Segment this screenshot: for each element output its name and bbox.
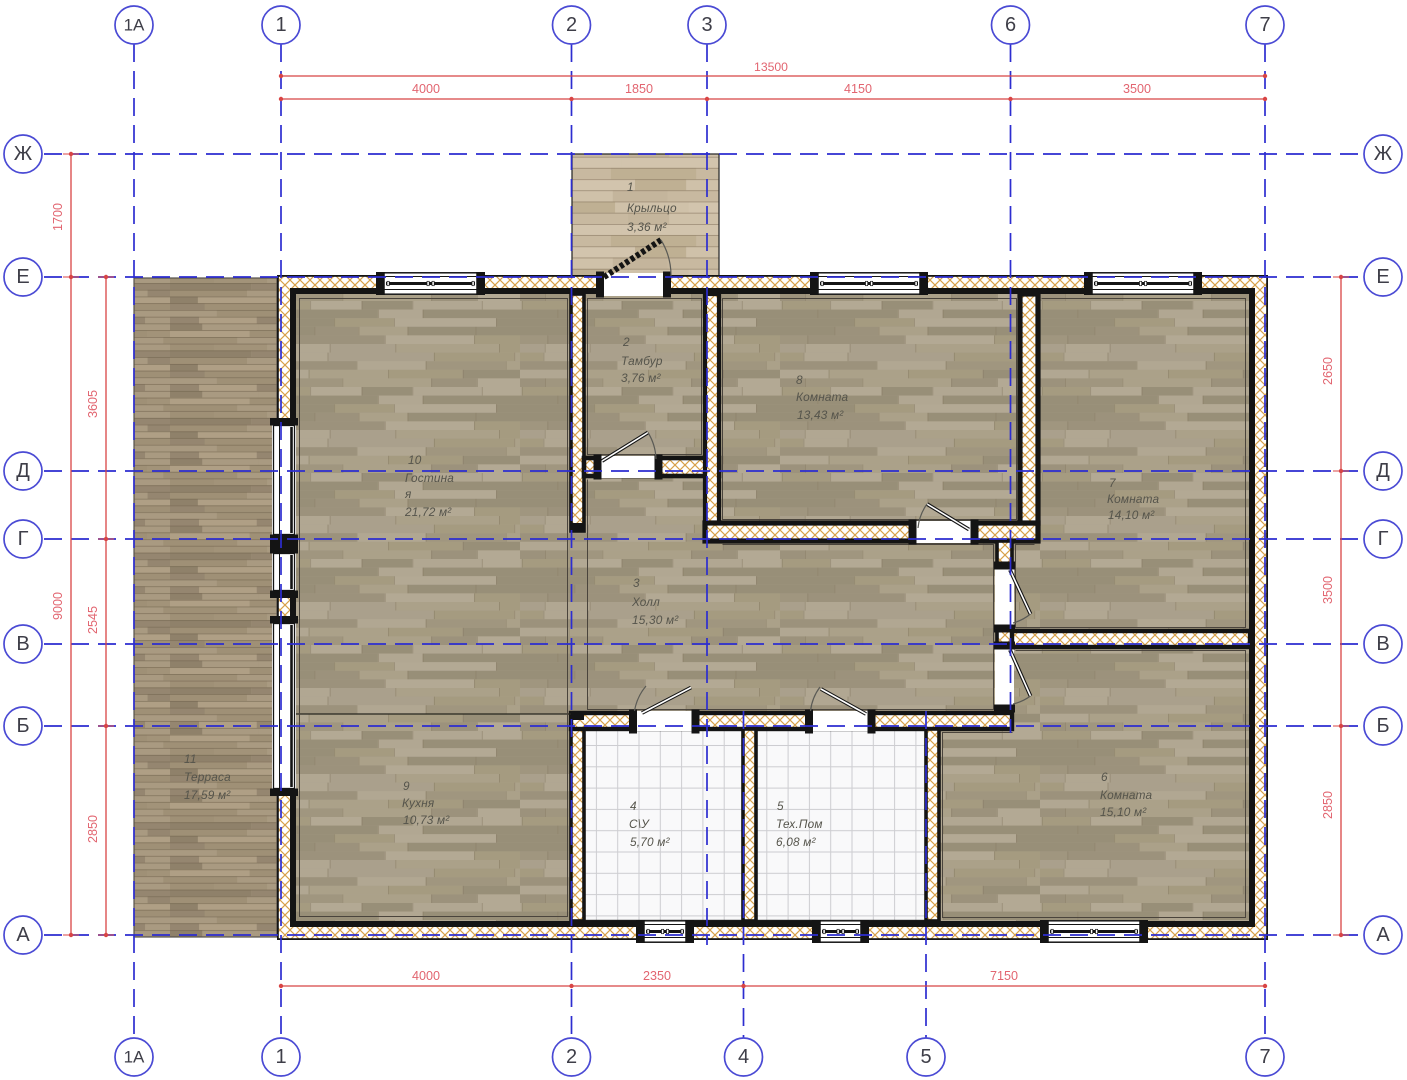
- svg-text:Д: Д: [1376, 460, 1390, 482]
- svg-text:2650: 2650: [1321, 357, 1335, 385]
- svg-text:7150: 7150: [990, 969, 1018, 983]
- svg-text:Кухня: Кухня: [402, 796, 435, 810]
- svg-text:2: 2: [566, 14, 577, 36]
- svg-text:Тех.Пом: Тех.Пом: [776, 817, 823, 831]
- svg-text:15,10 м²: 15,10 м²: [1100, 805, 1147, 819]
- svg-text:6,08 м²: 6,08 м²: [776, 835, 817, 849]
- svg-text:Комната: Комната: [1100, 788, 1153, 802]
- svg-text:2850: 2850: [86, 815, 100, 843]
- svg-text:1700: 1700: [51, 203, 65, 231]
- svg-text:9: 9: [403, 779, 410, 793]
- svg-text:7: 7: [1259, 1046, 1270, 1068]
- svg-text:10,73 м²: 10,73 м²: [403, 813, 450, 827]
- svg-text:1А: 1А: [124, 16, 145, 35]
- svg-text:Крыльцо: Крыльцо: [627, 201, 677, 215]
- svg-text:1А: 1А: [124, 1048, 145, 1067]
- svg-text:Холл: Холл: [631, 595, 660, 609]
- svg-text:13,43 м²: 13,43 м²: [797, 408, 844, 422]
- svg-text:А: А: [1376, 924, 1390, 946]
- svg-text:3: 3: [633, 576, 640, 590]
- svg-text:Г: Г: [1378, 528, 1389, 550]
- svg-text:2850: 2850: [1321, 791, 1335, 819]
- svg-text:В: В: [1376, 633, 1389, 655]
- svg-text:8: 8: [796, 373, 803, 387]
- svg-text:В: В: [16, 633, 29, 655]
- svg-text:4000: 4000: [412, 82, 440, 96]
- svg-text:7: 7: [1109, 476, 1116, 490]
- svg-text:1: 1: [627, 180, 634, 194]
- svg-text:4150: 4150: [844, 82, 872, 96]
- svg-text:Тамбур: Тамбур: [621, 354, 663, 368]
- svg-text:Е: Е: [1376, 266, 1389, 288]
- svg-text:Комната: Комната: [1107, 492, 1160, 506]
- svg-text:6: 6: [1005, 14, 1016, 36]
- svg-text:3: 3: [701, 14, 712, 36]
- svg-text:11: 11: [184, 752, 197, 766]
- svg-text:2545: 2545: [86, 606, 100, 634]
- svg-text:Д: Д: [16, 460, 30, 482]
- svg-text:14,10 м²: 14,10 м²: [1108, 508, 1155, 522]
- svg-text:Б: Б: [16, 715, 29, 737]
- svg-text:6: 6: [1101, 770, 1108, 784]
- svg-text:Г: Г: [18, 528, 29, 550]
- svg-text:Ж: Ж: [14, 143, 33, 165]
- svg-text:10: 10: [408, 453, 422, 467]
- svg-text:Терраса: Терраса: [184, 770, 231, 784]
- svg-text:2: 2: [566, 1046, 577, 1068]
- svg-text:13500: 13500: [754, 60, 788, 74]
- svg-text:3,76 м²: 3,76 м²: [621, 371, 662, 385]
- svg-text:7: 7: [1259, 14, 1270, 36]
- svg-text:15,30 м²: 15,30 м²: [632, 613, 679, 627]
- svg-text:я: я: [404, 487, 412, 501]
- svg-text:А: А: [16, 924, 30, 946]
- svg-text:2: 2: [622, 335, 630, 349]
- svg-text:4000: 4000: [412, 969, 440, 983]
- svg-text:9000: 9000: [51, 592, 65, 620]
- svg-text:21,72 м²: 21,72 м²: [404, 505, 452, 519]
- svg-text:2350: 2350: [643, 969, 671, 983]
- svg-text:5: 5: [777, 799, 784, 813]
- svg-text:Б: Б: [1376, 715, 1389, 737]
- svg-text:Комната: Комната: [796, 390, 849, 404]
- svg-text:Ж: Ж: [1374, 143, 1393, 165]
- svg-text:17,59 м²: 17,59 м²: [184, 788, 231, 802]
- svg-text:3500: 3500: [1123, 82, 1151, 96]
- svg-text:5,70 м²: 5,70 м²: [630, 835, 671, 849]
- svg-text:Гостина: Гостина: [405, 471, 454, 485]
- svg-text:5: 5: [920, 1046, 931, 1068]
- svg-text:4: 4: [630, 799, 637, 813]
- svg-text:3605: 3605: [86, 390, 100, 418]
- svg-text:3,36 м²: 3,36 м²: [627, 220, 668, 234]
- svg-text:Е: Е: [16, 266, 29, 288]
- svg-text:3500: 3500: [1321, 576, 1335, 604]
- svg-text:4: 4: [738, 1046, 749, 1068]
- svg-text:1: 1: [275, 1046, 286, 1068]
- svg-text:1850: 1850: [625, 82, 653, 96]
- svg-text:С\У: С\У: [629, 817, 650, 831]
- svg-text:1: 1: [275, 14, 286, 36]
